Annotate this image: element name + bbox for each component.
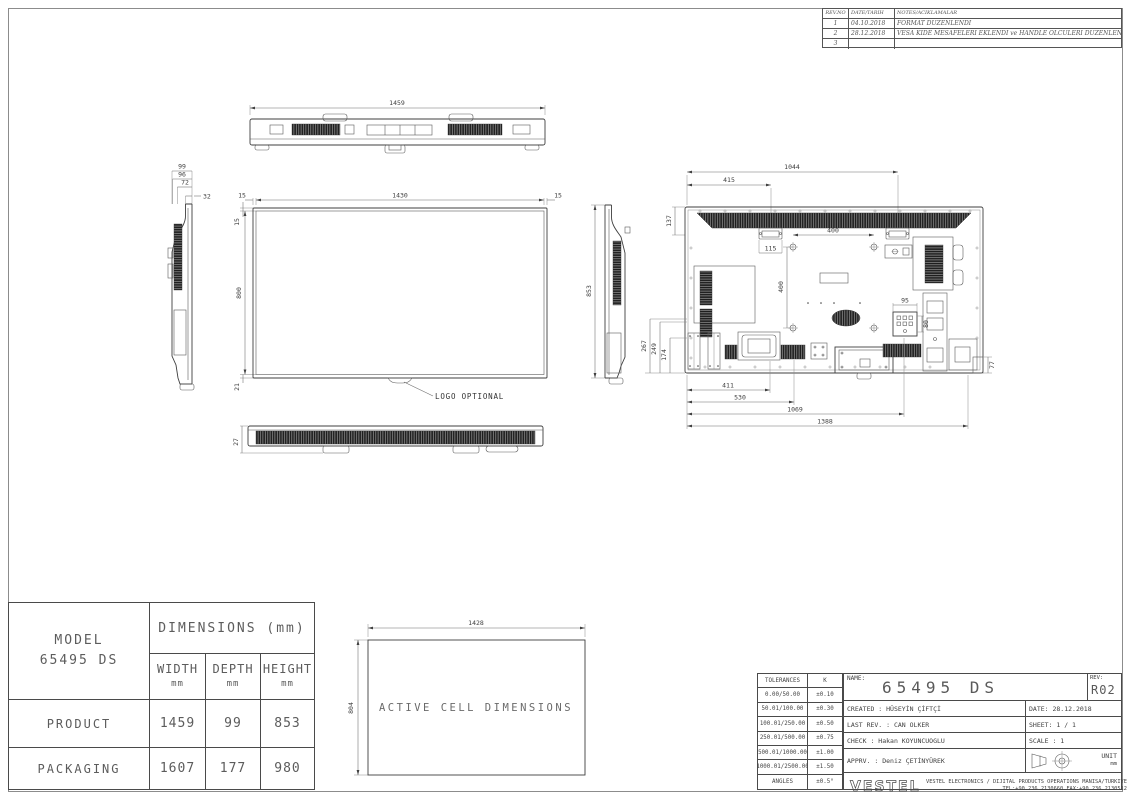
date: DATE: 28.12.2018: [1026, 701, 1121, 716]
title-block: NAME: 65495 DS REV: R02 CREATED : HÜSEYİ…: [843, 673, 1122, 790]
revision-row-note: [895, 39, 1121, 49]
rear-handle-right: [886, 228, 909, 239]
revision-table: REV.NO DATE/TARIH NOTES/ACIKLAMALAR 1 04…: [822, 8, 1122, 48]
revision-col-notes: NOTES/ACIKLAMALAR: [895, 9, 1121, 19]
svg-text:96: 96: [178, 171, 186, 179]
drawing-sheet: REV.NO DATE/TARIH NOTES/ACIKLAMALAR 1 04…: [0, 0, 1130, 799]
checked-by: CHECK : Hakan KOYUNCUOGLU: [844, 733, 1026, 748]
tol-range: 1000.01/2500.00: [758, 760, 808, 774]
svg-text:267: 267: [640, 340, 648, 352]
bottom-view: 27: [228, 418, 563, 470]
svg-text:400: 400: [777, 281, 785, 293]
svg-text:1430: 1430: [392, 192, 408, 200]
vent-strip: [292, 124, 340, 135]
scale: SCALE : 1: [1026, 733, 1121, 748]
svg-text:77: 77: [988, 361, 996, 369]
left-side-dims: 99 96 72 32: [172, 163, 211, 205]
company-contact: TEL:+90.236.2130660 FAX:+90.236.2130512: [926, 786, 1127, 793]
unit-label: UNIT: [1101, 752, 1117, 760]
dimensions-table: MODEL 65495 DS DIMENSIONS (mm) WIDTHmm D…: [8, 602, 315, 790]
model-value: 65495 DS: [40, 651, 119, 671]
svg-text:411: 411: [722, 382, 734, 390]
svg-text:99: 99: [178, 163, 186, 171]
svg-text:32: 32: [203, 193, 211, 201]
model-label: MODEL: [54, 631, 103, 651]
rear-dims-left: 267 249 174: [640, 319, 687, 373]
tol-value: ±0.10: [808, 688, 842, 702]
svg-text:27: 27: [232, 438, 240, 446]
stand-mount: [385, 145, 405, 153]
product-height: 853: [260, 699, 314, 747]
col-width: WIDTHmm: [149, 653, 205, 699]
tol-value: ±1.00: [808, 746, 842, 760]
svg-text:530: 530: [734, 394, 746, 402]
name-cell: NAME: 65495 DS: [844, 674, 1087, 700]
revision-row-no: 1: [823, 19, 849, 29]
left-side-view: 99 96 72 32: [152, 160, 237, 395]
svg-text:15: 15: [554, 192, 562, 200]
svg-text:137: 137: [665, 215, 673, 227]
handle-right: [449, 114, 473, 121]
handle-left: [323, 114, 347, 121]
sheet: SHEET: 1 / 1: [1026, 717, 1121, 732]
tol-range: 250.01/500.00: [758, 732, 808, 746]
svg-text:80: 80: [922, 320, 930, 328]
svg-text:LOGO OPTIONAL: LOGO OPTIONAL: [435, 392, 504, 401]
side-vent: [174, 224, 182, 290]
revision-row-note: VESA KIDE MESAFELERI EKLENDI ve HANDLE O…: [895, 29, 1121, 39]
revision-col-date: DATE/TARIH: [849, 9, 895, 19]
switch-box: [893, 312, 917, 336]
tol-value: ±0.30: [808, 703, 842, 717]
revision-row-date: 04.10.2018: [849, 19, 895, 29]
rear-handle-left: [759, 228, 782, 239]
active-cell-diagram: 1428 804 ACTIVE CELL DIMENSIONS: [340, 612, 602, 787]
last-rev-by: LAST REV. : CAN OLKER: [844, 717, 1026, 732]
svg-text:400: 400: [827, 227, 839, 235]
front-view-body: [253, 208, 547, 383]
packaging-height: 980: [260, 747, 314, 789]
created-by: CREATED : HÜSEYİN ÇİFTÇİ: [844, 701, 1026, 716]
tol-value: ±1.50: [808, 760, 842, 774]
active-cell-dims: 1428 804: [347, 619, 585, 775]
front-view-dims-top: 15 1430 15: [238, 192, 562, 206]
svg-text:800: 800: [235, 287, 243, 299]
revision-row-date: [849, 39, 895, 49]
company-line: VESTEL ELECTRONICS / DIJITAL PRODUCTS OP…: [926, 779, 1127, 786]
vestel-logo: VESTEL: [848, 775, 926, 797]
drawing-name: 65495 DS: [882, 678, 999, 697]
logo-optional-callout: LOGO OPTIONAL: [404, 382, 504, 401]
top-view: 1459: [235, 95, 560, 163]
product-depth: 99: [205, 699, 260, 747]
left-side-body: [168, 204, 194, 390]
col-height: HEIGHTmm: [260, 653, 314, 699]
logo-notch: [388, 378, 412, 383]
connector-panel: [913, 237, 963, 290]
rear-speaker-oval: [832, 310, 860, 326]
bottom-view-body: [248, 426, 543, 453]
svg-text:1388: 1388: [817, 418, 833, 426]
col-depth: DEPTHmm: [205, 653, 260, 699]
tol-range: 50.01/100.00: [758, 703, 808, 717]
unit-cell: UNIT mm: [1101, 753, 1117, 768]
tol-value: ±0.5°: [808, 775, 842, 789]
tol-value: ±0.75: [808, 732, 842, 746]
svg-text:1459: 1459: [389, 99, 405, 107]
top-view-dim-width: 1459: [250, 99, 545, 115]
side-vent: [613, 241, 621, 305]
revision-row-note: FORMAT DUZENLENDI: [895, 19, 1121, 29]
top-view-body: [250, 114, 545, 153]
rear-left-vent: [700, 271, 712, 305]
svg-text:72: 72: [181, 179, 189, 187]
svg-text:21: 21: [233, 383, 241, 391]
rear-bottom-modules: [688, 332, 983, 379]
revision-row-no: 3: [823, 39, 849, 49]
svg-text:249: 249: [650, 343, 658, 355]
rear-center-slot: [820, 273, 848, 283]
front-view: 15 1430 15 15 800 21 LOGO OPTIONAL: [228, 190, 563, 418]
vent-strip: [256, 431, 535, 444]
svg-text:1428: 1428: [468, 619, 484, 627]
row-packaging-label: PACKAGING: [9, 747, 149, 789]
svg-text:95: 95: [901, 297, 909, 305]
svg-text:115: 115: [765, 245, 777, 253]
tolerances-k: K: [808, 674, 842, 688]
tol-range: 0.00/50.00: [758, 688, 808, 702]
svg-text:1044: 1044: [784, 163, 800, 171]
rev-label: REV:: [1090, 675, 1103, 681]
svg-text:415: 415: [723, 176, 735, 184]
revision-row-date: 28.12.2018: [849, 29, 895, 39]
svg-text:804: 804: [347, 702, 355, 714]
rear-view: 1044 415 137: [625, 153, 1035, 438]
power-inlet: [885, 245, 912, 258]
revision-col-rev: REV.NO: [823, 9, 849, 19]
product-width: 1459: [149, 699, 205, 747]
model-cell: MODEL 65495 DS: [9, 603, 149, 699]
tol-range: ANGLES: [758, 775, 808, 789]
revision-row-no: 2: [823, 29, 849, 39]
approved-by: APPRV. : Deniz ÇETİNYÜREK: [844, 749, 1026, 772]
name-label: NAME:: [847, 675, 865, 682]
svg-text:853: 853: [585, 285, 593, 297]
row-product-label: PRODUCT: [9, 699, 149, 747]
active-cell-label: ACTIVE CELL DIMENSIONS: [379, 702, 573, 714]
svg-text:174: 174: [660, 349, 668, 361]
rev-cell: REV: R02: [1087, 674, 1121, 700]
svg-text:15: 15: [233, 218, 241, 226]
right-side-dim-height: 853: [585, 205, 605, 378]
tolerances-table: TOLERANCES K 0.00/50.00 ±0.10 50.01/100.…: [757, 673, 843, 790]
packaging-width: 1607: [149, 747, 205, 789]
svg-text:1069: 1069: [787, 406, 803, 414]
tol-range: 500.01/1000.00: [758, 746, 808, 760]
tolerances-title: TOLERANCES: [758, 674, 808, 688]
rear-right-column: [923, 293, 947, 371]
vent-strip: [448, 124, 502, 135]
projection-symbol-icon: [1029, 751, 1081, 771]
svg-text:15: 15: [238, 192, 246, 200]
unit-value: mm: [1110, 761, 1117, 767]
company-info: VESTEL ELECTRONICS / DIJITAL PRODUCTS OP…: [926, 779, 1127, 793]
rev-value: R02: [1091, 683, 1116, 697]
svg-text:VESTEL: VESTEL: [850, 779, 921, 795]
packaging-depth: 177: [205, 747, 260, 789]
tol-value: ±0.50: [808, 717, 842, 731]
dimensions-header: DIMENSIONS (mm): [149, 603, 314, 653]
tol-range: 100.01/250.00: [758, 717, 808, 731]
